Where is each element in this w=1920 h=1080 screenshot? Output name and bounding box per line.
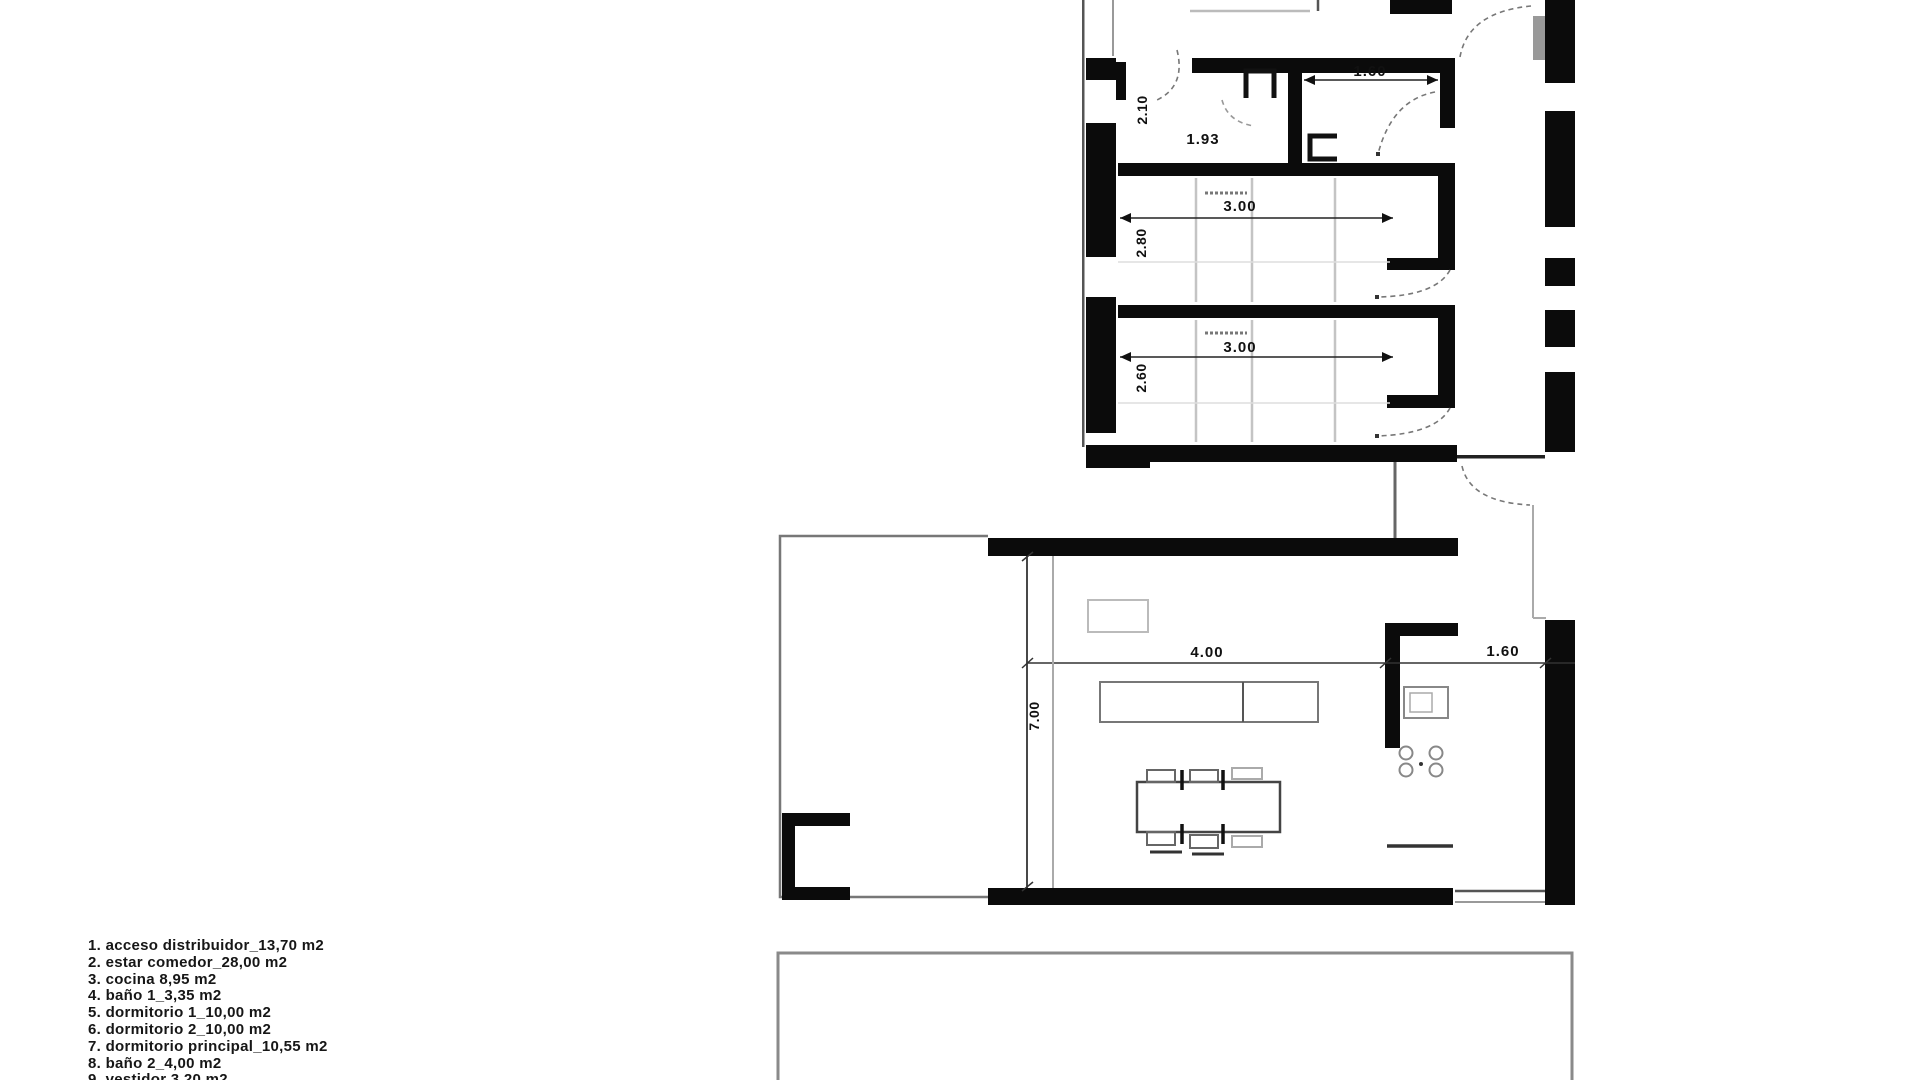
wall-bath-divider: [1288, 58, 1302, 165]
wall-segment: [1086, 58, 1116, 80]
legend-item: 7. dormitorio principal_10,55 m2: [88, 1039, 328, 1056]
toilet-fixture: [1310, 136, 1337, 159]
legend-item: 8. baño 2_4,00 m2: [88, 1056, 328, 1073]
dim-label-bedroom2-width: 3.00: [1223, 339, 1256, 356]
wall-segment: [1545, 258, 1575, 286]
dim-label-bath2-width: 1.60: [1353, 63, 1386, 80]
hinge-dots: [1375, 152, 1380, 438]
legend-item: 1. acceso distribuidor_13,70 m2: [88, 938, 328, 955]
planter-walls: [782, 813, 850, 900]
wall-bedroom1-top: [1118, 163, 1445, 176]
door-arcs: [1157, 6, 1531, 505]
wall-segment: [1545, 0, 1575, 83]
wall-bedroom1-right: [1438, 163, 1455, 260]
wardrobe-lines: [1118, 178, 1390, 302]
wall-bedroom2-right: [1438, 305, 1455, 398]
sideboard: [1100, 682, 1318, 722]
plan-drawing: 1.60 1.93 2.10 3.00 2.80 3.00 2.60: [0, 0, 1920, 1080]
wall-bath2-right: [1440, 58, 1455, 128]
wall-entry-l: [1390, 0, 1452, 14]
wall-segment: [1086, 123, 1116, 257]
wall-thin-bottom: [1457, 455, 1545, 459]
bath2-door-arc: [1378, 92, 1435, 154]
entry-door-leaf: [1533, 16, 1545, 60]
wall-face-line: [1082, 0, 1085, 447]
wall-bedroom2-stub: [1387, 395, 1455, 408]
wall-bottom: [988, 888, 1453, 905]
dim-label-bedroom2-depth: 2.60: [1133, 363, 1149, 392]
wall-bath-top: [1192, 58, 1455, 73]
wall-segment: [1545, 372, 1575, 452]
wall-segments: [1086, 0, 1575, 468]
exterior-door-arc: [1462, 466, 1530, 505]
living-wing-plan: 4.00 1.60 7.00: [780, 536, 1575, 905]
wall-segment: [1086, 297, 1116, 433]
wall-bedroom1-stub: [1387, 258, 1455, 270]
wall-top: [988, 538, 1458, 556]
shower-arc: [1222, 100, 1254, 126]
bedroom-wing-plan: 1.60 1.93 2.10 3.00 2.80 3.00 2.60: [1082, 0, 1575, 505]
wall-segment: [1545, 111, 1575, 227]
wall-bedroom2-top: [1118, 305, 1445, 318]
wall-segment: [1116, 62, 1126, 100]
dim-label-living-width: 4.00: [1190, 644, 1223, 661]
wall-segment: [1545, 310, 1575, 347]
legend-item: 4. baño 1_3,35 m2: [88, 988, 328, 1005]
dim-label-bath1-length: 1.93: [1186, 131, 1219, 148]
dim-label-bedroom1-width: 3.00: [1223, 198, 1256, 215]
pool-outline: [778, 953, 1572, 1080]
legend-item: 3. cocina 8,95 m2: [88, 972, 328, 989]
floor-plan-sheet: 1.60 1.93 2.10 3.00 2.80 3.00 2.60: [0, 0, 1920, 1080]
hob-burners: [1400, 747, 1443, 777]
terrace-outline: [780, 536, 988, 897]
dining-table: [1137, 782, 1280, 832]
wall-corner: [1086, 458, 1150, 468]
room-legend: 1. acceso distribuidor_13,70 m2 2. estar…: [88, 938, 328, 1080]
sofa: [1088, 600, 1148, 632]
dim-label-kitchen-width: 1.60: [1486, 643, 1519, 660]
kitchen-sink-basin: [1410, 693, 1432, 712]
entry-door-arc: [1460, 6, 1531, 57]
legend-item: 6. dormitorio 2_10,00 m2: [88, 1022, 328, 1039]
bedroom1-door-arc: [1377, 270, 1450, 297]
kitchen-wall-side: [1385, 623, 1400, 748]
legend-item: 9. vestidor 3,20 m2: [88, 1072, 328, 1080]
dim-label-living-depth: 7.00: [1026, 701, 1042, 730]
bedroom2-door-arc: [1377, 408, 1450, 436]
dim-label-bedroom1-depth: 2.80: [1133, 228, 1149, 257]
chairs: [1147, 768, 1262, 848]
bath1-door-arc: [1157, 50, 1179, 100]
toilet-fixture: [1246, 71, 1274, 98]
dim-label-bath1-width: 2.10: [1134, 95, 1150, 124]
legend-item: 5. dormitorio 1_10,00 m2: [88, 1005, 328, 1022]
legend-item: 2. estar comedor_28,00 m2: [88, 955, 328, 972]
